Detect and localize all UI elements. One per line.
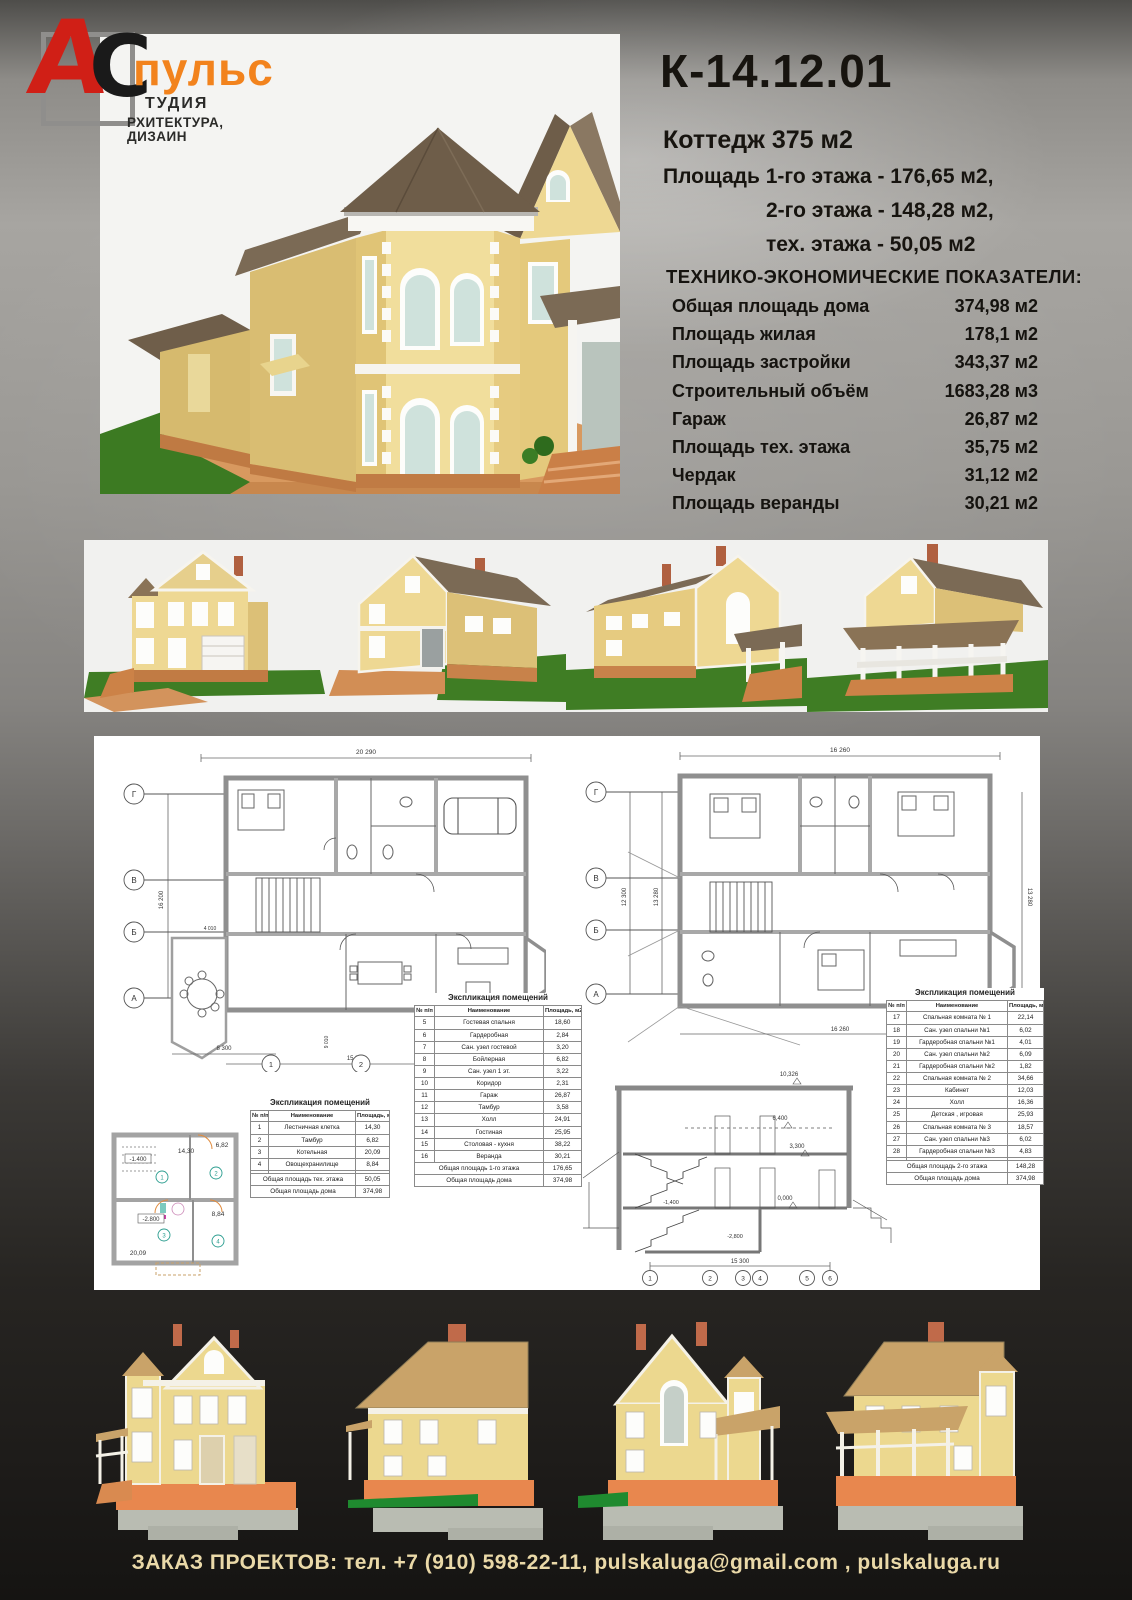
table-cell: 15 [415, 1138, 435, 1150]
table-row: 21Гардеробная спальни №21,82 [887, 1060, 1044, 1072]
table-cell: Гараж [435, 1090, 544, 1102]
svg-text:-2.800: -2.800 [142, 1217, 160, 1223]
svg-text:0,000: 0,000 [777, 1196, 793, 1202]
svg-text:12 300: 12 300 [622, 887, 628, 906]
tep-title: ТЕХНИКО-ЭКОНОМИЧЕСКИЕ ПОКАЗАТЕЛИ: [666, 268, 1082, 287]
col-header: Наименование [435, 1006, 544, 1017]
svg-text:А: А [593, 990, 599, 999]
area-line: тех. этажа - 50,05 м2 [663, 228, 994, 262]
svg-text:Г: Г [132, 790, 137, 799]
table-cell: Гостиная [435, 1126, 544, 1138]
table-cell: 28 [887, 1145, 907, 1157]
table-cell: Чердак [672, 461, 913, 489]
table-cell: 12,03 [1008, 1085, 1044, 1097]
table-cell: 6,02 [1008, 1133, 1044, 1145]
table-cell: 24 [887, 1097, 907, 1109]
table-row: Гараж26,87 м2 [672, 405, 1040, 433]
table-cell: Кабинет [907, 1085, 1008, 1097]
table-row: 1Лестничная клетка14,30 [251, 1122, 390, 1134]
table-row: 13Холл24,91 [415, 1114, 582, 1126]
area-line: 2-го этажа - 148,28 м2, [663, 194, 994, 228]
table-cell: Общая площадь дома [251, 1186, 356, 1198]
elevation-front [88, 1316, 318, 1544]
table-cell: 2 [251, 1134, 269, 1146]
table-header-row: № п/п Наименование Площадь, м2 [415, 1006, 582, 1017]
table-cell: Общая площадь дома [672, 292, 913, 320]
table-cell: 6,09 [1008, 1048, 1044, 1060]
col-header: Площадь, м2 [544, 1006, 582, 1017]
explication-table-floor1: Экспликация помещений № п/п Наименование… [414, 993, 582, 1187]
table-cell: Овощехранилище [269, 1158, 356, 1170]
table-cell: 30,21 [544, 1150, 582, 1162]
table-row: 8Бойлерная6,82 [415, 1053, 582, 1065]
table-cell: Коридор [435, 1078, 544, 1090]
table-cell: 24,91 [544, 1114, 582, 1126]
col-header: Площадь, м2 [356, 1111, 390, 1122]
table-cell: 1 [251, 1122, 269, 1134]
table-cell: Сан. узел спальни №3 [907, 1133, 1008, 1145]
table-row: 24Холл16,36 [887, 1097, 1044, 1109]
table-cell: Гардеробная спальни №2 [907, 1060, 1008, 1072]
svg-text:А: А [131, 994, 137, 1003]
elevation-side-left [328, 1316, 558, 1544]
table-cell: Холл [435, 1114, 544, 1126]
table-row: 19Гардеробная спальни №14,01 [887, 1036, 1044, 1048]
table-cell: 2,31 [544, 1078, 582, 1090]
svg-text:15 300: 15 300 [731, 1259, 750, 1265]
svg-text:-1.400: -1.400 [129, 1157, 147, 1163]
logo-brand: пульс [133, 46, 274, 92]
table-cell: 8,84 [356, 1158, 390, 1170]
table-row: 10Коридор2,31 [415, 1078, 582, 1090]
table-cell: Общая площадь тех. этажа [251, 1173, 356, 1185]
table-row: 28Гардеробная спальни №34,83 [887, 1145, 1044, 1157]
elevations-strip [88, 1316, 1048, 1544]
table-cell: Общая площадь дома [415, 1175, 544, 1187]
table-cell: 176,65 [544, 1162, 582, 1174]
table-cell: Общая площадь 2-го этажа [887, 1160, 1008, 1172]
col-header: Площадь, м2 [1008, 1001, 1044, 1012]
porch-column [568, 320, 577, 456]
table-cell: 4,01 [1008, 1036, 1044, 1048]
logo-studio-line1: ТУДИЯ [145, 96, 208, 112]
table-row: Общая площадь дома374,98 [415, 1175, 582, 1187]
table-cell: Столовая - кухня [435, 1138, 544, 1150]
table-cell: Сан. узел 1 эт. [435, 1065, 544, 1077]
svg-text:Б: Б [593, 926, 598, 935]
table-cell: Гостевая спальня [435, 1017, 544, 1029]
studio-logo: А С пульс ТУДИЯ РХИТЕКТУРА, ДИЗАИН [33, 24, 248, 142]
svg-text:8 300: 8 300 [216, 1046, 232, 1052]
table-cell: 6,82 [544, 1053, 582, 1065]
tep-table: Общая площадь дома374,98 м2Площадь жилая… [672, 292, 1040, 518]
explication-table-floor2: Экспликация помещений № п/п Наименование… [886, 988, 1044, 1185]
table-cell: 3 [251, 1146, 269, 1158]
table-cell: 4 [251, 1158, 269, 1170]
table-row: Чердак31,12 м2 [672, 461, 1040, 489]
table-cell: 27 [887, 1133, 907, 1145]
table-row: 9Сан. узел 1 эт.3,22 [415, 1065, 582, 1077]
table-row: 15Столовая - кухня38,22 [415, 1138, 582, 1150]
explication-table-tech: Экспликация помещений № п/п Наименование… [250, 1098, 390, 1198]
table-row: 4Овощехранилище8,84 [251, 1158, 390, 1170]
svg-text:Б: Б [131, 928, 136, 937]
table-cell: Общая площадь 1-го этажа [415, 1162, 544, 1174]
tech-floor-plan: -1.400 -2.800 14,30 6,82 20,09 8,84 1 2 … [98, 1085, 253, 1280]
svg-text:4: 4 [758, 1276, 762, 1283]
table-cell: 22 [887, 1073, 907, 1085]
table-cell: 7 [415, 1041, 435, 1053]
table-row: 16Веранда30,21 [415, 1150, 582, 1162]
svg-text:9 010: 9 010 [324, 1036, 330, 1049]
logo-studio-line2: РХИТЕКТУРА, ДИЗАИН [127, 116, 248, 143]
table-cell: 35,75 м2 [913, 433, 1040, 461]
table-row: Площадь тех. этажа35,75 м2 [672, 433, 1040, 461]
svg-text:6: 6 [828, 1276, 832, 1283]
table-cell: Площадь веранды [672, 489, 913, 517]
table-cell: Гардеробная спальни №3 [907, 1145, 1008, 1157]
table-cell: Веранда [435, 1150, 544, 1162]
table-row: 22Спальная комната № 234,66 [887, 1073, 1044, 1085]
table-cell: 374,98 [356, 1186, 390, 1198]
table-row: Общая площадь дома374,98 м2 [672, 292, 1040, 320]
table-row: 26Спальная комната № 318,57 [887, 1121, 1044, 1133]
table-cell: Тамбур [269, 1134, 356, 1146]
svg-text:20 290: 20 290 [356, 749, 376, 756]
table-row: 11Гараж26,87 [415, 1090, 582, 1102]
table-cell: Строительный объём [672, 377, 913, 405]
views-strip [84, 540, 1048, 712]
table-row: Общая площадь дома374,98 [251, 1186, 390, 1198]
svg-text:5: 5 [805, 1276, 809, 1283]
table-row: Общая площадь тех. этажа50,05 [251, 1173, 390, 1185]
table-cell: 3,58 [544, 1102, 582, 1114]
table-title: Экспликация помещений [250, 1098, 390, 1108]
svg-text:6,400: 6,400 [772, 1116, 788, 1122]
table-cell: Тамбур [435, 1102, 544, 1114]
table-cell: Сан. узел спальни №1 [907, 1024, 1008, 1036]
table-cell: 1683,28 м3 [913, 377, 1040, 405]
table-cell: 9 [415, 1065, 435, 1077]
svg-text:В: В [131, 876, 136, 885]
view-rear-angle [566, 540, 807, 712]
table-cell: Гардеробная [435, 1029, 544, 1041]
table-cell: 5 [415, 1017, 435, 1029]
table-row: 20Сан. узел спальни №26,09 [887, 1048, 1044, 1060]
table-cell: Сан. узел гостевой [435, 1041, 544, 1053]
view-veranda-corner [807, 540, 1048, 712]
svg-text:В: В [593, 874, 598, 883]
table-cell: 6,82 [356, 1134, 390, 1146]
svg-text:-2,800: -2,800 [727, 1234, 743, 1240]
svg-text:10,326: 10,326 [780, 1072, 799, 1078]
table-cell: 38,22 [544, 1138, 582, 1150]
table-row: Площадь застройки343,37 м2 [672, 348, 1040, 376]
area-lines: Площадь 1-го этажа - 176,65 м2, 2-го эта… [663, 160, 994, 262]
table-row: 12Тамбур3,58 [415, 1102, 582, 1114]
table-row: 6Гардеробная2,84 [415, 1029, 582, 1041]
table-cell: 25,95 [544, 1126, 582, 1138]
poster-root: А С пульс ТУДИЯ РХИТЕКТУРА, ДИЗАИН К-14.… [0, 0, 1132, 1600]
view-front [84, 540, 325, 712]
table-cell: 25,93 [1008, 1109, 1044, 1121]
table-cell: 19 [887, 1036, 907, 1048]
table-cell: Площадь застройки [672, 348, 913, 376]
table-row: Строительный объём1683,28 м3 [672, 377, 1040, 405]
table-cell: 18,60 [544, 1017, 582, 1029]
svg-text:8,84: 8,84 [212, 1211, 225, 1218]
table-cell: 20 [887, 1048, 907, 1060]
table-cell: Гараж [672, 405, 913, 433]
svg-text:6,82: 6,82 [216, 1142, 229, 1149]
elevation-veranda-side [808, 1316, 1038, 1544]
svg-text:4 010: 4 010 [204, 926, 217, 932]
table-cell: 26 [887, 1121, 907, 1133]
table-cell: Площадь жилая [672, 320, 913, 348]
table-row: 18Сан. узел спальни №16,02 [887, 1024, 1044, 1036]
table-cell: 22,14 [1008, 1012, 1044, 1024]
table-row: 14Гостиная25,95 [415, 1126, 582, 1138]
table-cell: 50,05 [356, 1173, 390, 1185]
table-cell: 374,98 [544, 1175, 582, 1187]
svg-text:2: 2 [708, 1276, 712, 1283]
col-header: № п/п [887, 1001, 907, 1012]
table-cell: Холл [907, 1097, 1008, 1109]
table-cell: 26,87 м2 [913, 405, 1040, 433]
table-row: 25Детская , игровая25,93 [887, 1109, 1044, 1121]
svg-text:3: 3 [741, 1276, 745, 1283]
table-cell: Площадь тех. этажа [672, 433, 913, 461]
table-cell: 374,98 м2 [913, 292, 1040, 320]
table-cell: 374,98 [1008, 1173, 1044, 1185]
col-header: № п/п [415, 1006, 435, 1017]
svg-text:13 280: 13 280 [1026, 888, 1032, 907]
tower-cornice [348, 216, 534, 231]
svg-text:20,09: 20,09 [130, 1250, 147, 1257]
table-cell: 21 [887, 1060, 907, 1072]
table-cell: 23 [887, 1085, 907, 1097]
table-row: Общая площадь дома374,98 [887, 1173, 1044, 1185]
project-subtitle: Коттедж 375 м2 [663, 128, 853, 153]
col-header: № п/п [251, 1111, 269, 1122]
table-cell: 148,28 [1008, 1160, 1044, 1172]
svg-text:1: 1 [269, 1060, 273, 1069]
table-title: Экспликация помещений [886, 988, 1044, 998]
table-cell: 17 [887, 1012, 907, 1024]
table-cell: Гардеробная спальни №1 [907, 1036, 1008, 1048]
svg-text:-1,400: -1,400 [663, 1200, 679, 1206]
table-row: 5Гостевая спальня18,60 [415, 1017, 582, 1029]
table-row: 7Сан. узел гостевой3,20 [415, 1041, 582, 1053]
table-row: 3Котельная20,09 [251, 1146, 390, 1158]
table-cell: 18 [887, 1024, 907, 1036]
table-cell: 4,83 [1008, 1145, 1044, 1157]
table-cell: 14,30 [356, 1122, 390, 1134]
table-row: 2Тамбур6,82 [251, 1134, 390, 1146]
table-cell: 3,22 [544, 1065, 582, 1077]
table-cell: 1,82 [1008, 1060, 1044, 1072]
svg-text:14,30: 14,30 [178, 1148, 195, 1155]
table-cell: 18,57 [1008, 1121, 1044, 1133]
table-cell: Спальная комната № 2 [907, 1073, 1008, 1085]
table-cell: Общая площадь дома [887, 1173, 1008, 1185]
svg-text:16 260: 16 260 [831, 1027, 850, 1033]
table-cell: 178,1 м2 [913, 320, 1040, 348]
section-drawing: 10,326 6,400 3,300 0,000 -1,400 -2,800 1… [575, 1058, 895, 1286]
table-header-row: № п/п Наименование Площадь, м2 [251, 1111, 390, 1122]
footer-contact: ЗАКАЗ ПРОЕКТОВ: тел. +7 (910) 598-22-11,… [0, 1548, 1132, 1578]
table-row: Площадь жилая178,1 м2 [672, 320, 1040, 348]
svg-text:16 260: 16 260 [830, 747, 850, 754]
table-cell: 343,37 м2 [913, 348, 1040, 376]
table-cell: 26,87 [544, 1090, 582, 1102]
table-cell: 14 [415, 1126, 435, 1138]
table-cell: 16 [415, 1150, 435, 1162]
svg-text:1: 1 [648, 1276, 652, 1283]
table-row: 27Сан. узел спальни №36,02 [887, 1133, 1044, 1145]
svg-text:3,300: 3,300 [789, 1144, 805, 1150]
svg-text:13 280: 13 280 [654, 887, 660, 906]
table-cell: 31,12 м2 [913, 461, 1040, 489]
area-line: Площадь 1-го этажа - 176,65 м2, [663, 160, 994, 194]
table-cell: 16,36 [1008, 1097, 1044, 1109]
table-cell: 10 [415, 1078, 435, 1090]
col-header: Наименование [907, 1001, 1008, 1012]
table-cell: 6,02 [1008, 1024, 1044, 1036]
table-row: Площадь веранды30,21 м2 [672, 489, 1040, 517]
table-cell: 3,20 [544, 1041, 582, 1053]
svg-text:2: 2 [359, 1060, 363, 1069]
table-cell: 25 [887, 1109, 907, 1121]
drawings-panel: 20 290 16 200 Г В Б А [94, 736, 1040, 1290]
svg-text:16 200: 16 200 [159, 890, 165, 909]
col-header: Наименование [269, 1111, 356, 1122]
table-title: Экспликация помещений [414, 993, 582, 1003]
table-cell: 13 [415, 1114, 435, 1126]
entry-door [582, 342, 620, 454]
table-cell: 34,66 [1008, 1073, 1044, 1085]
table-cell: 6 [415, 1029, 435, 1041]
table-row: Общая площадь 2-го этажа148,28 [887, 1160, 1044, 1172]
table-cell: 2,84 [544, 1029, 582, 1041]
table-cell: Детская , игровая [907, 1109, 1008, 1121]
table-cell: 8 [415, 1053, 435, 1065]
svg-text:Г: Г [594, 788, 599, 797]
table-cell: 11 [415, 1090, 435, 1102]
table-cell: 20,09 [356, 1146, 390, 1158]
table-cell: Лестничная клетка [269, 1122, 356, 1134]
table-cell: 30,21 м2 [913, 489, 1040, 517]
table-cell: 12 [415, 1102, 435, 1114]
table-cell: Спальная комната № 1 [907, 1012, 1008, 1024]
table-header-row: № п/п Наименование Площадь, м2 [887, 1001, 1044, 1012]
table-cell: Бойлерная [435, 1053, 544, 1065]
table-row: Общая площадь 1-го этажа176,65 [415, 1162, 582, 1174]
table-row: 23Кабинет12,03 [887, 1085, 1044, 1097]
table-row: 17Спальная комната № 122,14 [887, 1012, 1044, 1024]
table-cell: Спальная комната № 3 [907, 1121, 1008, 1133]
project-code: К-14.12.01 [660, 48, 892, 94]
table-cell: Котельная [269, 1146, 356, 1158]
view-angle-left [325, 540, 566, 712]
elevation-gable-end [568, 1316, 798, 1544]
table-cell: Сан. узел спальни №2 [907, 1048, 1008, 1060]
